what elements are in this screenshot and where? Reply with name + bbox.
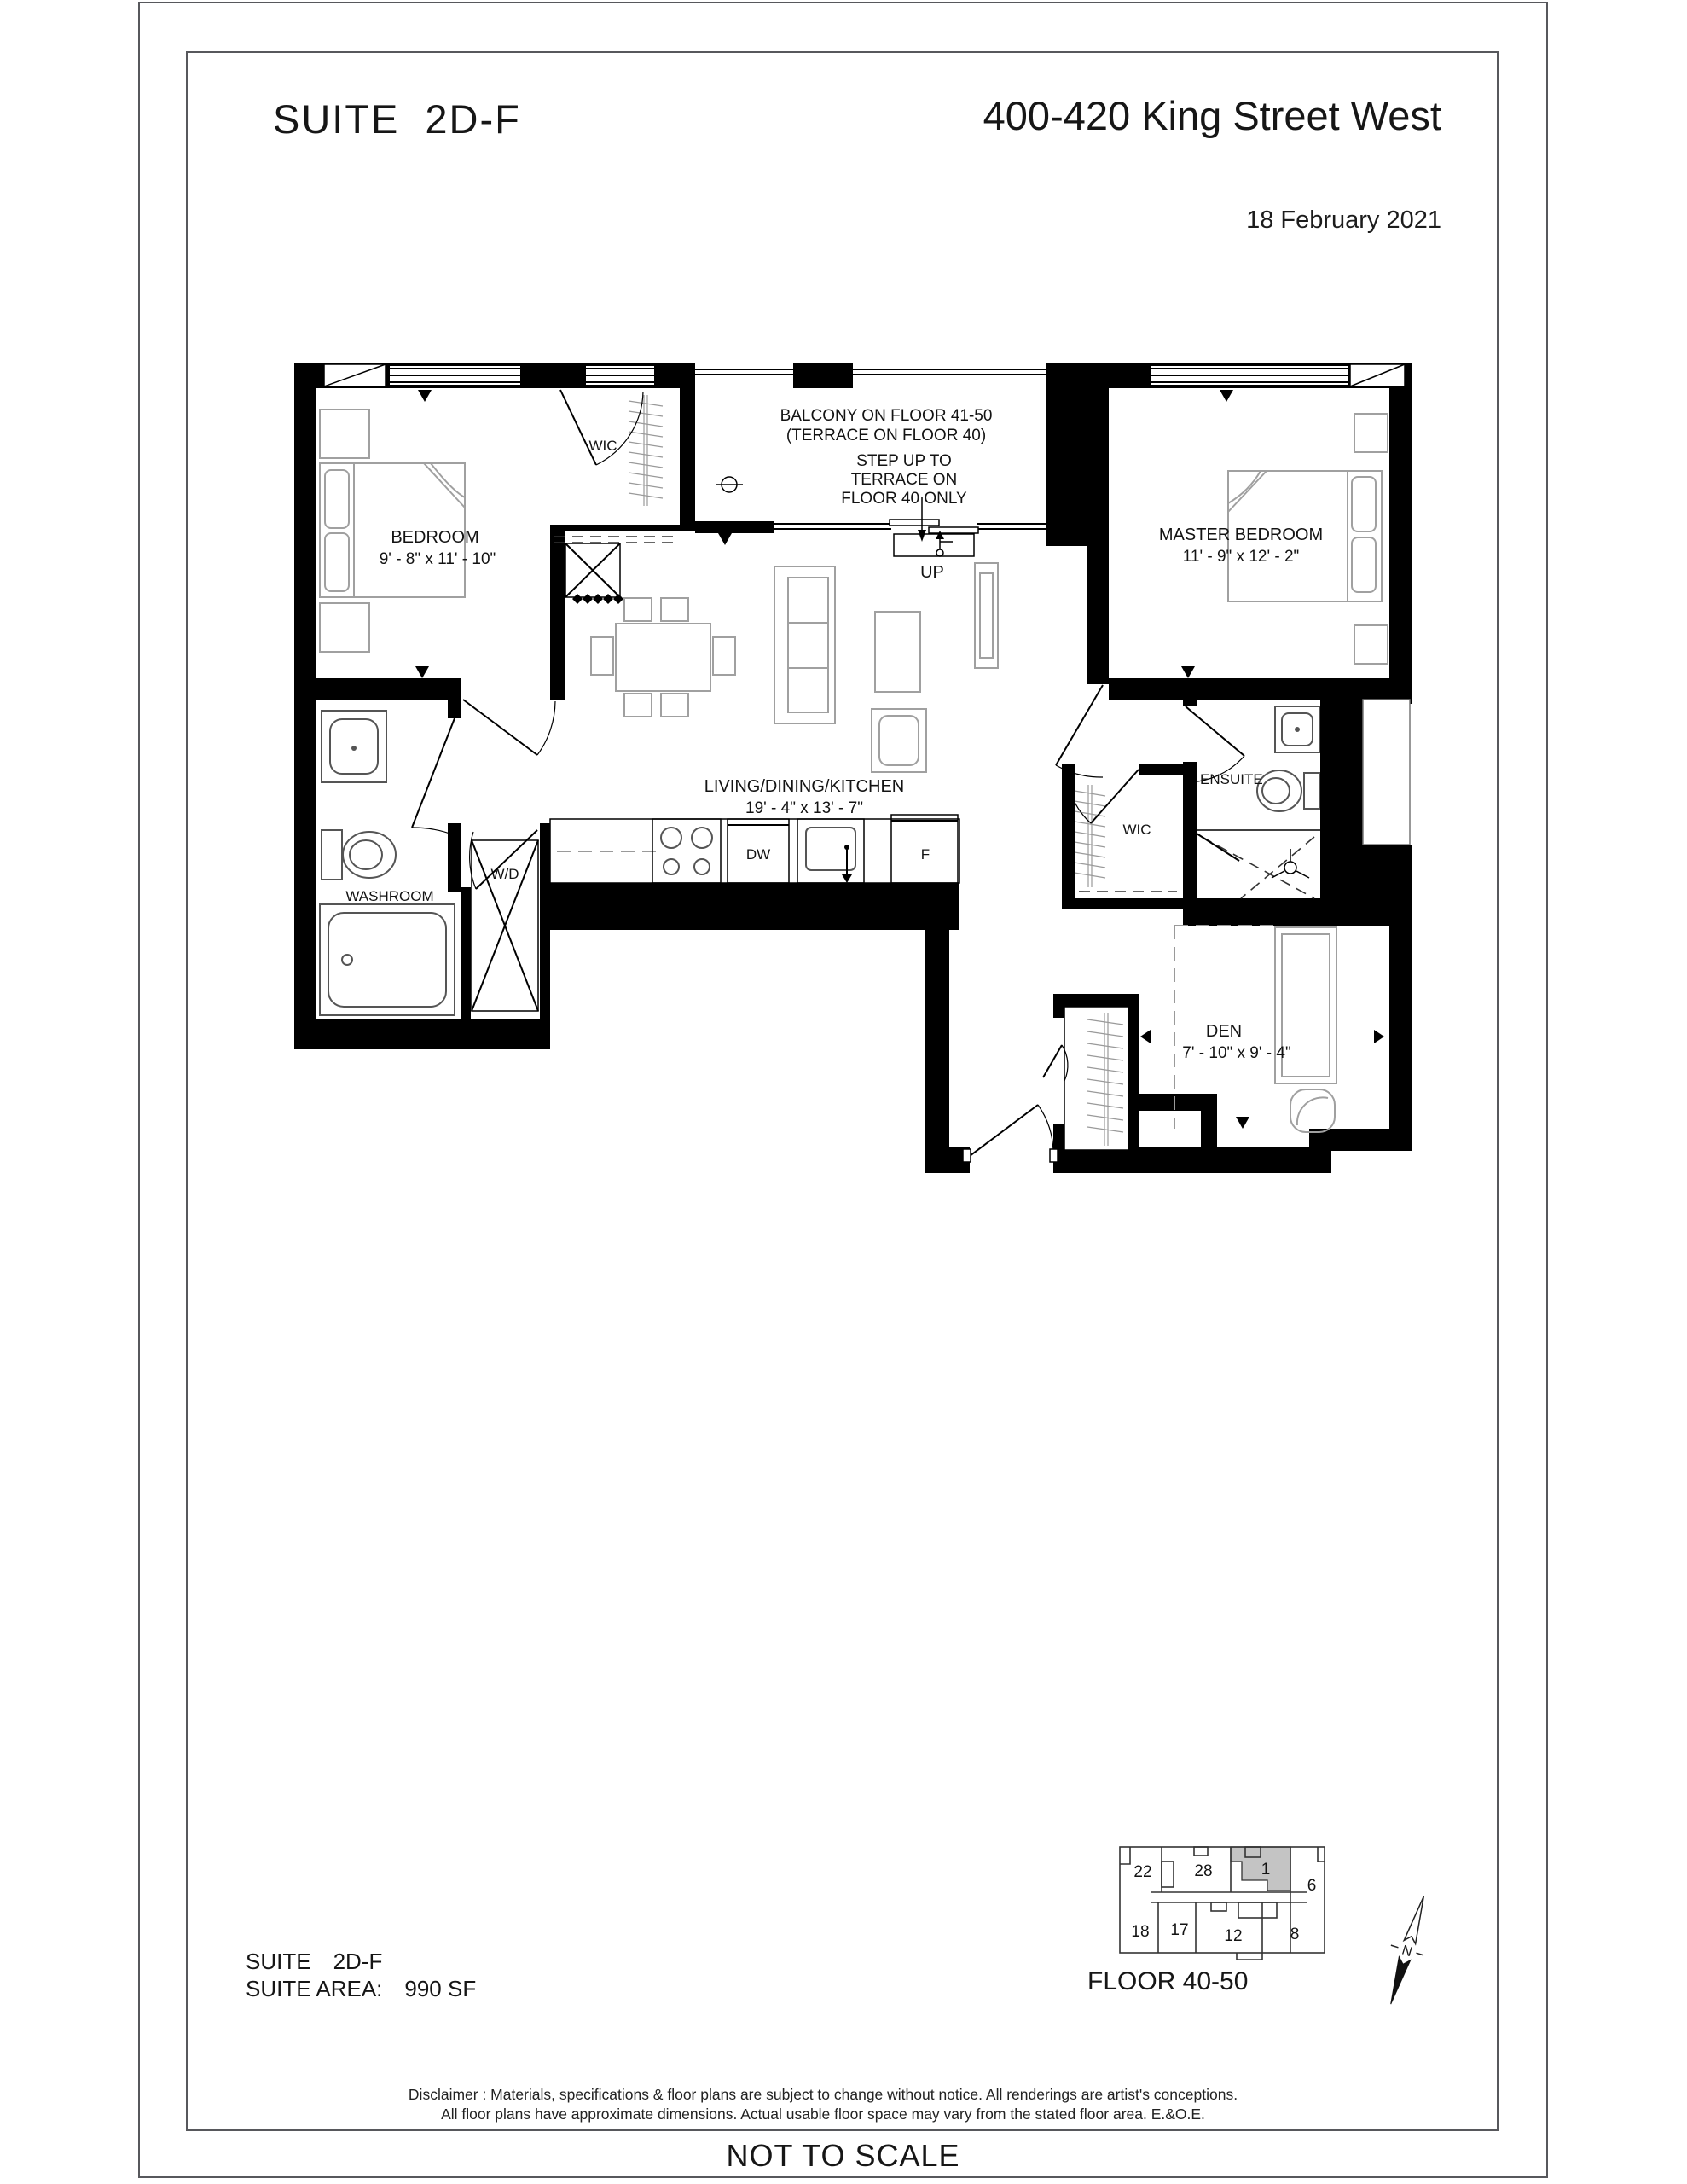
suite-info-label: SUITE (246, 1949, 311, 1974)
step-line1: STEP UP TO (856, 452, 952, 470)
ensuite-toilet (1257, 770, 1319, 811)
key-plan: 22 28 1 6 18 17 12 8 (1109, 1827, 1332, 1964)
disclaimer-line2: All floor plans have approximate dimensi… (188, 2105, 1458, 2124)
unit-28: 28 (1194, 1862, 1212, 1880)
floor-plan: W/D DW (294, 363, 1412, 1203)
north-needle: N (1375, 1891, 1441, 2009)
unit-12: 12 (1224, 1927, 1242, 1945)
ensuite-sink (1275, 706, 1319, 752)
kitchen-counter: DW F (550, 815, 959, 883)
dishwasher: DW (728, 819, 789, 883)
up-label: UP (920, 563, 944, 582)
pantry-closet (565, 543, 623, 604)
disclaimer: Disclaimer : Materials, specifications &… (188, 2085, 1458, 2124)
toilet (322, 830, 396, 880)
tv-unit (975, 563, 998, 668)
suite-info-value: 2D-F (333, 1949, 383, 1974)
floor-range-label: FLOOR 40-50 (1087, 1967, 1248, 1996)
address: 400-420 King Street West (759, 92, 1441, 139)
living-dims: 19' - 4" x 13' - 7" (745, 799, 863, 817)
north-label: N (1400, 1943, 1414, 1960)
shower (1197, 830, 1320, 898)
date: 18 February 2021 (1015, 206, 1441, 235)
unit-17: 17 (1170, 1921, 1188, 1939)
scale-note: NOT TO SCALE (138, 2138, 1548, 2174)
wd-label: W/D (490, 866, 519, 882)
title-value: 2D-F (425, 96, 520, 142)
unit-18: 18 (1131, 1923, 1149, 1941)
suite-area-label: SUITE AREA: (246, 1976, 382, 2001)
bedroom-label: BEDROOM (391, 528, 478, 547)
bathtub (320, 904, 455, 1015)
unit-8: 8 (1290, 1926, 1300, 1943)
wic-bedroom-label: WIC (588, 438, 617, 454)
north-arrow: N (1365, 1884, 1450, 2020)
page-title: SUITE2D-F (273, 96, 521, 142)
suite-area-value: 990 SF (404, 1976, 476, 2001)
stove (652, 819, 721, 883)
floorplan-page: SUITE2D-F 400-420 King Street West 18 Fe… (0, 0, 1687, 2184)
bedroom-dims: 9' - 8" x 11' - 10" (380, 550, 496, 568)
kitchen-sink (797, 819, 864, 883)
armchair (872, 709, 926, 772)
coffee-table (875, 612, 920, 692)
balcony-line2: (TERRACE ON FLOOR 40) (786, 427, 986, 444)
washer-dryer-closet: W/D (472, 840, 538, 1011)
disclaimer-line1: Disclaimer : Materials, specifications &… (188, 2085, 1458, 2105)
dw-label: DW (746, 846, 770, 863)
dining-set (591, 598, 735, 717)
fridge: F (891, 815, 958, 883)
living-label: LIVING/DINING/KITCHEN (704, 777, 904, 796)
balcony-rail (680, 363, 1046, 533)
unit-1: 1 (1261, 1861, 1271, 1879)
sofa (774, 566, 835, 723)
washroom-label: WASHROOM (345, 888, 433, 904)
unit-22: 22 (1133, 1863, 1151, 1881)
fridge-label: F (921, 846, 930, 863)
den-dims: 7' - 10" x 9' - 4" (1182, 1044, 1290, 1062)
den-label: DEN (1206, 1022, 1242, 1041)
title-label: SUITE (273, 96, 399, 142)
unit-6: 6 (1307, 1877, 1317, 1895)
den-chair (1290, 1089, 1335, 1132)
step-line2: TERRACE ON (851, 471, 958, 489)
master-dims: 11' - 9" x 12' - 2" (1183, 548, 1300, 566)
step-line3: FLOOR 40 ONLY (841, 490, 967, 508)
washroom-sink (322, 711, 386, 782)
ensuite-label: ENSUITE (1200, 771, 1263, 787)
suite-info: SUITE2D-F SUITE AREA:990 SF (246, 1949, 476, 2002)
wic-master-label: WIC (1122, 822, 1151, 838)
balcony-line1: BALCONY ON FLOOR 41-50 (780, 407, 993, 425)
wic-master-hangers (1075, 785, 1177, 892)
master-label: MASTER BEDROOM (1159, 526, 1323, 544)
